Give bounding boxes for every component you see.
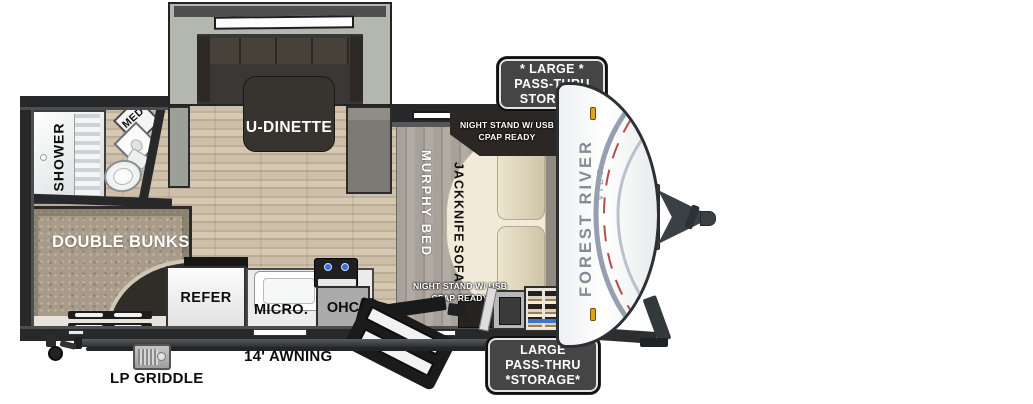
top-wall-left — [20, 96, 172, 110]
dinette-bench-back — [205, 38, 355, 64]
clearance-light-icon — [590, 308, 596, 321]
hitch-coupler — [700, 211, 716, 226]
open-cabinet — [492, 290, 526, 330]
burner-icon — [324, 263, 332, 271]
lp-griddle — [133, 344, 171, 370]
badge-bottom-line2: PASS-THRU — [505, 358, 581, 372]
sofa-label-line2: SOFA — [452, 245, 465, 283]
stove — [314, 258, 358, 288]
window-slot — [253, 329, 307, 336]
lp-griddle-label: LP GRIDDLE — [110, 371, 204, 386]
badge-top-line1: * LARGE * — [520, 62, 584, 76]
stove-front — [318, 279, 356, 286]
brand-model: VIBE — [596, 139, 605, 227]
dinette-bench-side — [350, 36, 363, 102]
sink-basin — [263, 278, 315, 304]
stabilizer-wheel — [42, 334, 78, 364]
slide-side-wall-left — [168, 106, 190, 188]
dinette-table: U-DINETTE — [243, 76, 335, 152]
shower-label-wrap: SHOWER — [30, 112, 86, 202]
brand-name: FOREST RIVER — [577, 139, 596, 297]
toilet-seat — [112, 166, 135, 187]
refrigerator: REFER — [166, 266, 246, 330]
shower-label: SHOWER — [51, 123, 65, 192]
sofa-label: JACKKNIFE SOFA — [452, 162, 465, 290]
burner-icon — [341, 263, 349, 271]
floorplan: MURPHY BED JACKKNIFE SOFA SHOWER MED DOU… — [0, 0, 1033, 404]
u-dinette-label: U-DINETTE — [246, 120, 332, 136]
left-wall — [20, 96, 34, 340]
a-frame — [658, 190, 704, 244]
nightstand-top-label: NIGHT STAND W/ USB CPAP READY — [452, 120, 562, 142]
dinette-window — [214, 15, 354, 29]
nightstand-top-line2: CPAP READY — [479, 132, 536, 143]
awning-label: 14' AWNING — [244, 349, 333, 364]
wardrobe — [346, 106, 392, 194]
dinette-bench-side — [197, 36, 210, 102]
clearance-light-icon — [590, 107, 596, 120]
badge-bottom-line3: *STORAGE* — [506, 373, 581, 387]
front-cap: FOREST RIVER VIBE — [556, 82, 660, 348]
double-bunks-label: DOUBLE BUNKS — [52, 234, 190, 251]
refer-label: REFER — [180, 291, 231, 306]
sofa-label-line1: JACKKNIFE — [452, 162, 465, 243]
brand-logo: FOREST RIVER VIBE — [565, 109, 617, 327]
micro-label: MICRO. — [254, 303, 308, 318]
nightstand-top-line1: NIGHT STAND W/ USB — [460, 120, 554, 131]
